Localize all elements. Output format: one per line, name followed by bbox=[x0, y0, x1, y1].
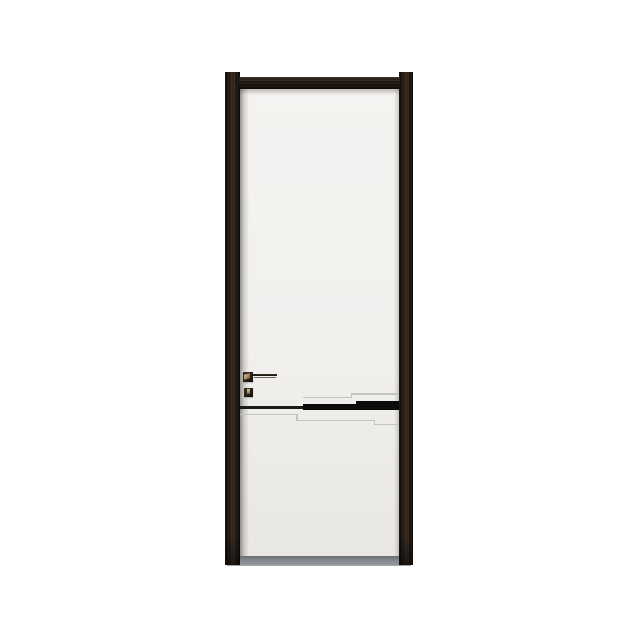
door-frame-left-stile bbox=[225, 72, 240, 565]
groove-line-upper-right bbox=[351, 393, 400, 395]
leaf-right-shadow bbox=[394, 89, 399, 556]
door-frame-right-stile bbox=[399, 72, 413, 565]
keyhole-brass-insert bbox=[247, 389, 250, 394]
door-leaf bbox=[240, 89, 399, 556]
inlay-stripe-thin bbox=[240, 406, 306, 409]
inlay-stripe-medium bbox=[303, 404, 357, 410]
groove-line-lower-left bbox=[240, 414, 298, 416]
leaf-top-shadow bbox=[240, 89, 399, 95]
handle-brass-neck bbox=[244, 373, 250, 379]
door-frame-top-rail bbox=[239, 77, 400, 89]
groove-line-lower-right bbox=[374, 424, 400, 426]
groove-line-lower-middle bbox=[296, 420, 375, 422]
handle-lever-bar bbox=[253, 374, 277, 376]
handle-rose bbox=[243, 372, 253, 382]
leaf-left-shadow bbox=[240, 89, 249, 556]
inlay-stripe-thick bbox=[356, 401, 399, 411]
product-photo bbox=[0, 0, 640, 640]
handle-lever-underside bbox=[254, 377, 276, 379]
keyhole-escutcheon bbox=[244, 388, 253, 397]
door bbox=[225, 72, 413, 566]
floor-shadow bbox=[227, 556, 411, 566]
groove-line-upper-left bbox=[303, 397, 352, 399]
